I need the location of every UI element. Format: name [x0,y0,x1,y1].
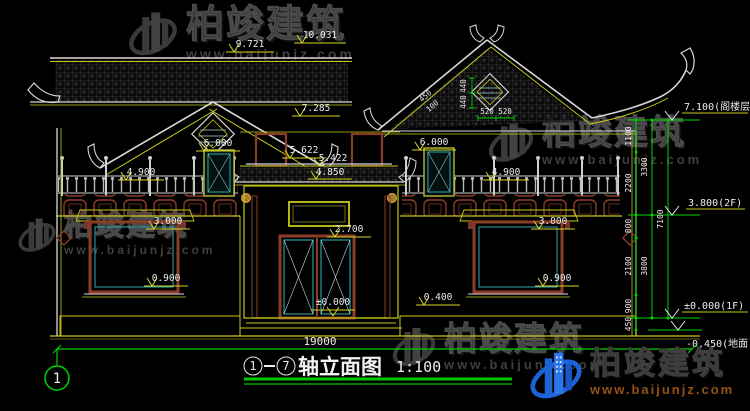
dim-text: 6.000 [204,138,233,149]
dim-text: 5.622 [290,145,319,156]
dim-text: 4.900 [492,167,521,178]
svg-text:3300: 3300 [640,157,649,176]
svg-text:1100: 1100 [624,126,633,145]
dim-text: ±0.000 [316,297,351,308]
title-axis-to: 7 [282,359,289,373]
gable-curl [88,144,104,168]
eave-curl-right [681,48,694,74]
rosette [388,194,397,203]
footer-brand-url: www.baijunjz.com [590,383,734,396]
level-text: ±0.000(1F) [684,301,744,312]
dim-plinth: 0.400 [416,292,460,305]
dim-ridge-right: 10.031 [294,30,346,43]
dim-text: 4.900 [127,167,156,178]
dim-text: 440 [459,79,468,93]
title-scale: 1:100 [396,358,441,376]
svg-text:450: 450 [624,317,633,332]
footer-brand-logo: 柏竣建筑 www.baijunjz.com [528,348,734,406]
title-text: 轴立面图 [298,355,382,379]
axis-bubble-label: 1 [53,371,61,387]
dim-text: 3.000 [539,216,568,227]
rosette [242,194,251,203]
wall-right [460,131,637,336]
svg-text:2100: 2100 [624,256,633,275]
dim-text: 520 [480,107,494,116]
level-text: 3.800(2F) [688,198,742,209]
brand-logo-icon [528,348,584,406]
apex-finial [470,25,484,42]
window-2f-right [352,134,382,166]
svg-text:2200: 2200 [624,173,633,192]
dim-text: 4.850 [316,167,345,178]
dim-text: 0.900 [152,273,181,284]
dim-text: 5.422 [319,153,348,164]
svg-text:900: 900 [624,299,633,314]
dim-text: 0.400 [424,292,453,303]
axis-bubble-1: 1 [45,349,69,390]
apex-finial [490,25,504,42]
dim-text: 520 [498,107,512,116]
dim-text: 0.900 [543,273,572,284]
svg-text:7100: 7100 [656,209,665,228]
dim-ridge-left: 9.721 [226,39,274,52]
dim-text: 9.721 [236,39,265,50]
balcony-door-right [424,148,454,196]
window-2f-left [256,134,286,166]
cad-screenshot: 柏竣建筑 www.baijunjz.com 柏竣建筑 www.baijunjz.… [0,0,750,411]
level-chain: 7.100(阁楼层) 3.800(2F) ±0.000(1F) -0.450(地… [624,100,750,350]
dim-text: 7.285 [302,103,331,114]
dim-text: 19000 [303,335,336,348]
gable-curl [364,108,382,130]
svg-text:800: 800 [624,219,633,234]
drawing-title: 1 7 轴立面图 1:100 [244,355,512,384]
title-axis-from: 1 [249,359,256,373]
chain-segment-texts: 1100 2200 3300 800 2100 900 450 3800 710… [624,126,665,331]
balcony-door-left [204,150,234,196]
dim-text: 2.700 [335,224,364,235]
footer-brand-text: 柏竣建筑 [590,348,734,379]
svg-text:3800: 3800 [640,256,649,275]
dim-text: 10.031 [303,30,338,41]
level-text: 7.100(阁楼层) [684,100,750,113]
dim-text: 440 [459,95,468,109]
dim-text: 6.000 [420,137,449,148]
dim-text: 3.000 [154,216,183,227]
dim-window-left-sill: 0.900 [144,273,188,286]
corner-bracket [57,231,71,245]
